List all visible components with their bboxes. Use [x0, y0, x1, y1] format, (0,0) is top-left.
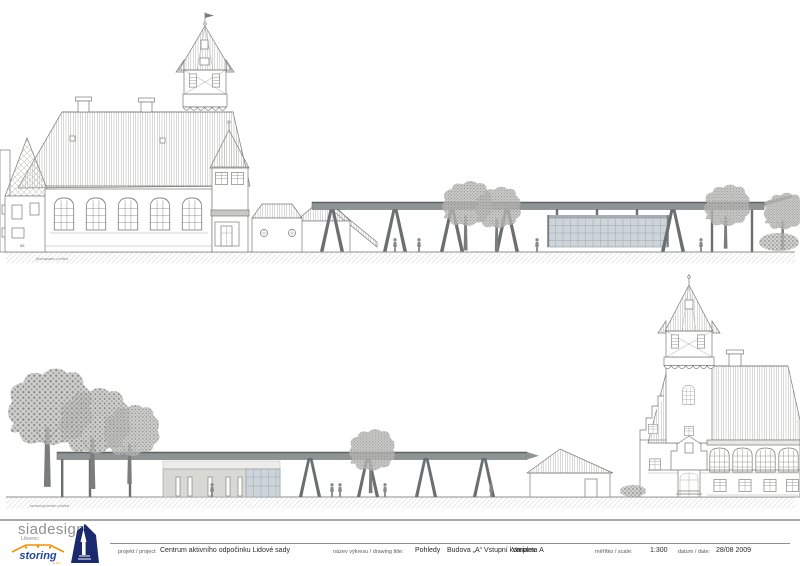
date-value: 28/08 2009 — [716, 547, 751, 554]
pavilion-building — [163, 461, 280, 497]
drawing-sheet: 88 — [0, 0, 800, 566]
ground-hatch — [6, 253, 795, 264]
person-figure — [393, 238, 397, 252]
drawing-title-value: Pohledy — [415, 547, 440, 554]
tower — [658, 274, 720, 443]
view-label-bottom: severovýchodní pohled — [30, 504, 69, 508]
person-figure — [535, 238, 539, 252]
annex-top — [252, 204, 377, 252]
title-block: siadesign Liberec storing s.r.o. projekt… — [0, 521, 800, 566]
elevation-bottom: severovýchodní pohled — [6, 274, 800, 509]
facade-mark: 88 — [20, 243, 25, 248]
view-label-top: jihozápadní pohled — [35, 257, 68, 261]
elevation-top: 88 — [0, 12, 800, 264]
historic-building-left: 88 — [0, 12, 250, 252]
scale-label: měřítko / scale: — [595, 549, 632, 555]
person-figure — [699, 238, 703, 252]
person-figure — [330, 483, 334, 497]
annex-bottom — [527, 449, 613, 497]
post — [61, 459, 63, 497]
historic-building-right — [620, 274, 800, 497]
a-frame-support — [415, 458, 437, 497]
project-value: Centrum aktivního odpočinku Lidové sady — [160, 547, 290, 554]
chimney — [729, 354, 741, 366]
chimney — [76, 97, 155, 112]
date-label: datum / date: — [678, 549, 710, 555]
drawing-canvas: 88 — [0, 0, 800, 518]
person-figure — [383, 483, 387, 497]
scale-value: 1:300 — [650, 547, 668, 554]
variant-value: Varianta A — [512, 547, 544, 554]
title-block-fields: projekt / project Centrum aktivního odpo… — [0, 521, 800, 566]
drawing-title-label: název výkresu / drawing title: — [333, 549, 404, 555]
glazed-corner — [246, 469, 280, 497]
a-frame-support — [299, 458, 321, 497]
project-label: projekt / project — [118, 549, 156, 555]
tree — [103, 405, 159, 484]
tree — [349, 429, 395, 493]
post — [751, 210, 753, 252]
flag-finial — [205, 13, 214, 18]
person-figure — [417, 238, 421, 252]
tower — [176, 12, 234, 110]
glass-pavilion — [547, 209, 669, 247]
person-figure — [338, 483, 342, 497]
ground-hatch — [6, 498, 795, 509]
